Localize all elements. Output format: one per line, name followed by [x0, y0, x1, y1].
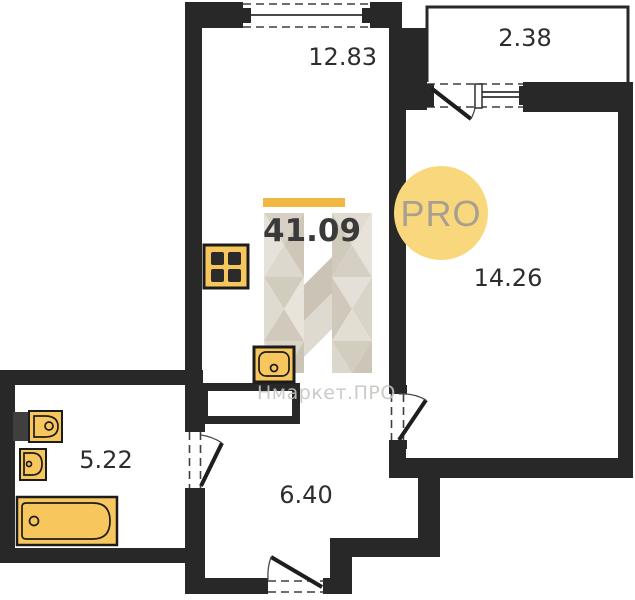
bedroom-door [392, 394, 427, 440]
pro-badge-label: PRO [400, 193, 481, 234]
bathroom-door [190, 432, 223, 488]
room-label-bathroom: 5.22 [79, 446, 132, 474]
total-area-label: 41.09 [263, 213, 361, 249]
pro-badge: PRO [394, 166, 488, 260]
total-area: 41.09 [263, 198, 361, 249]
bathroom-sink-icon [20, 449, 46, 480]
room-label-balcony: 2.38 [498, 24, 551, 52]
floor-plan: 12.83 2.38 14.26 5.22 6.40 41.09 PRO Нма… [0, 0, 635, 600]
room-label-hallway: 6.40 [279, 481, 332, 509]
floor-plan-canvas: 12.83 2.38 14.26 5.22 6.40 41.09 PRO Нма… [0, 0, 635, 600]
brand-watermark: Нмаркет.ПРО [257, 382, 396, 404]
room-label-kitchen-living: 12.83 [308, 43, 377, 71]
entrance-door [268, 557, 323, 592]
bathtub-icon [17, 497, 117, 545]
balcony-window-divider [475, 84, 482, 108]
kitchen-sink-icon [254, 347, 294, 382]
stove-icon [204, 245, 248, 288]
toilet-icon [13, 411, 62, 442]
balcony-door [427, 84, 528, 119]
total-area-accent-bar [263, 198, 345, 207]
room-label-bedroom: 14.26 [474, 264, 543, 292]
kitchen-window [243, 4, 370, 27]
